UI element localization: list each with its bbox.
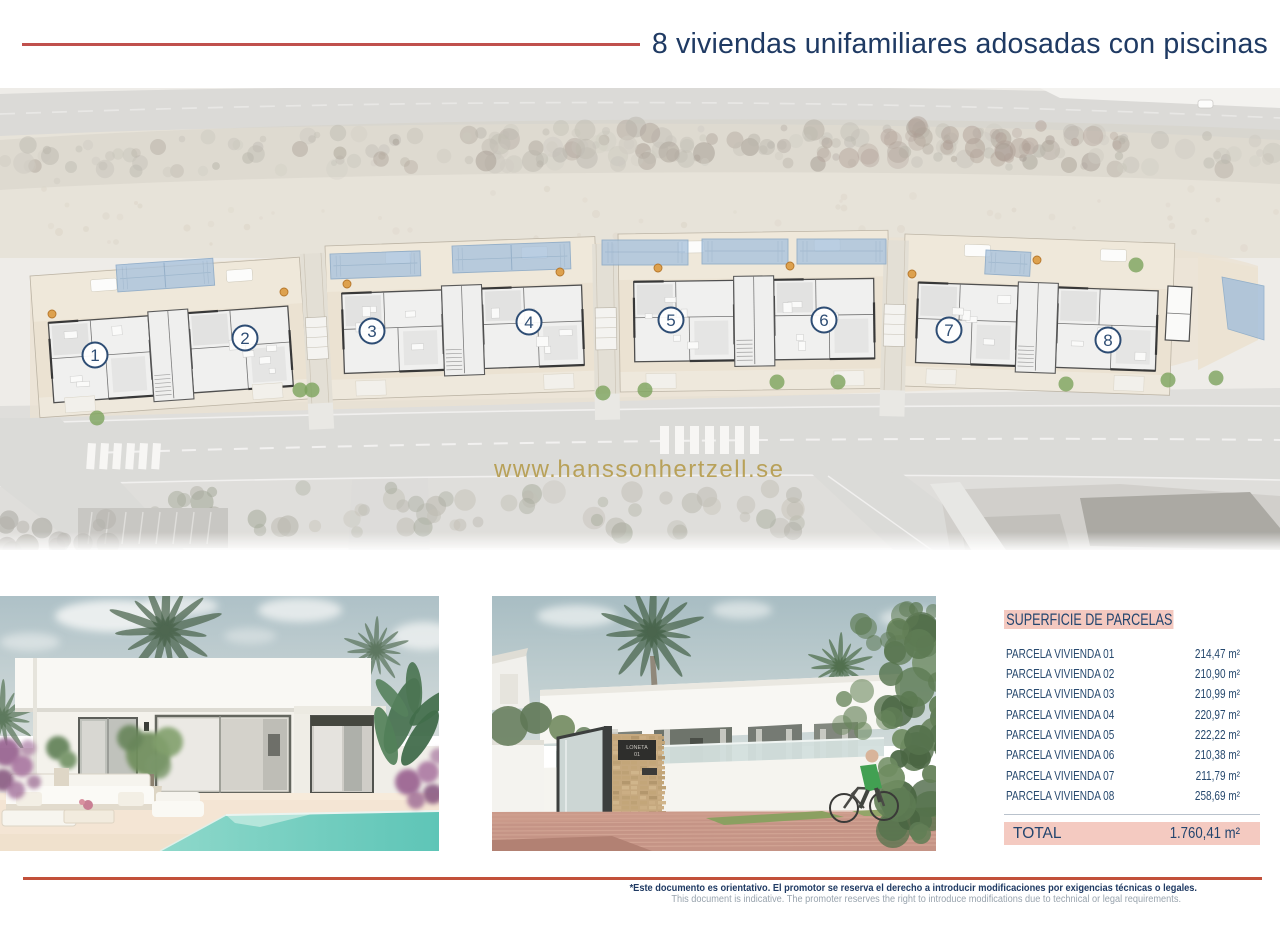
svg-text:LONETA: LONETA (626, 745, 648, 751)
svg-text:2: 2 (240, 329, 249, 348)
svg-text:1: 1 (90, 346, 99, 365)
svg-text:8: 8 (1103, 331, 1112, 350)
svg-text:6: 6 (819, 311, 828, 330)
svg-text:5: 5 (666, 311, 675, 330)
svg-text:4: 4 (524, 313, 533, 332)
svg-text:01: 01 (634, 752, 640, 758)
svg-text:7: 7 (944, 321, 953, 340)
svg-text:3: 3 (367, 322, 376, 341)
